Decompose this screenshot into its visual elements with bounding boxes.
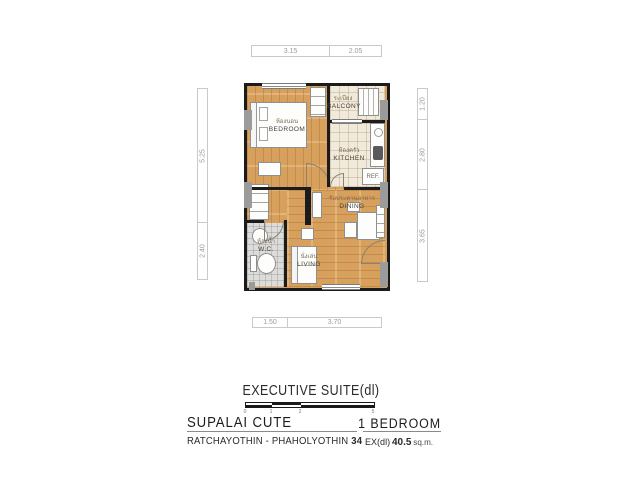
- room-label-balcony: ระเบียง BALCONY: [327, 96, 359, 110]
- dim-right-3-value: 3.65: [419, 229, 426, 243]
- floor-plan: REF.: [244, 83, 390, 291]
- dim-left-2-value: 2.40: [199, 244, 206, 258]
- room-label-kitchen: ห้องครัว KITCHEN: [331, 148, 367, 162]
- room-label-bedroom: ห้องนอน BEDROOM: [257, 119, 317, 133]
- stove-hob: [374, 128, 383, 137]
- dim-bottom-2-value: 3.70: [328, 319, 342, 326]
- column: [380, 100, 388, 120]
- dim-right-2: 2.80: [417, 119, 428, 190]
- bedroom-bench: [258, 162, 281, 176]
- area-unit: sq.m.: [413, 437, 433, 447]
- location-text: RATCHAYOTHIN - PHAHOLYOTHIN: [187, 436, 348, 447]
- wall-hall-living: [305, 187, 311, 225]
- dim-top-2-value: 2.05: [349, 48, 363, 55]
- living-label-thai: นั่งเล่น: [293, 254, 325, 261]
- kitchen-label-thai: ห้องครัว: [331, 148, 367, 155]
- kitchen-label-en: KITCHEN: [331, 155, 367, 162]
- living-label-en: LIVING: [293, 261, 325, 268]
- wall-bedroom-south: [247, 187, 306, 190]
- scale-bar-segment: [301, 405, 374, 407]
- column: [244, 182, 252, 208]
- bedroom-closet: [310, 87, 326, 117]
- kitchen-sink: [373, 146, 383, 160]
- balcony-label-thai: ระเบียง: [327, 96, 359, 103]
- refrigerator-label: REF.: [363, 174, 383, 180]
- column: [380, 262, 388, 287]
- bedroom-window: [262, 83, 306, 89]
- dim-top-2: 2.05: [329, 45, 382, 57]
- area-value: 40.5: [392, 436, 411, 448]
- dim-top-1: 3.15: [251, 45, 330, 57]
- dim-right-2-value: 2.80: [419, 148, 426, 162]
- dining-label-thai: รับประทานอาหาร: [323, 196, 381, 203]
- scale-bar-segment: [246, 405, 272, 407]
- column: [380, 182, 388, 208]
- room-label-dining: รับประทานอาหาร DINING: [323, 196, 381, 210]
- coffee-table: [301, 228, 314, 240]
- area-code: EX(dl): [365, 437, 390, 448]
- dim-right-1: 1.20: [417, 88, 428, 120]
- dim-bottom-2: 3.70: [287, 317, 382, 328]
- column: [244, 110, 252, 130]
- dim-left-2: 2.40: [197, 222, 208, 280]
- bedroom-label-thai: ห้องนอน: [257, 119, 317, 126]
- wall-kitchen-south: [344, 187, 385, 190]
- kitchen-counter: [370, 123, 385, 167]
- location-number: 34: [351, 436, 362, 447]
- dim-right-1-value: 1.20: [419, 97, 426, 111]
- wc-label-thai: ห้องน้ำ: [249, 239, 283, 246]
- balcony-label-en: BALCONY: [327, 103, 359, 110]
- scale-tick-2: 2: [299, 409, 302, 415]
- footer-rule-right: [363, 431, 441, 432]
- dim-left-1-value: 5.25: [199, 149, 206, 163]
- project-name: SUPALAI CUTE: [187, 414, 292, 431]
- dim-top-1-value: 3.15: [284, 48, 298, 55]
- unit-type-title: EXECUTIVE SUITE(dl): [207, 383, 415, 399]
- bedroom-label-en: BEDROOM: [257, 126, 317, 133]
- wall-wc-top: [247, 220, 264, 223]
- bedroom-count: 1 BEDROOM: [349, 416, 441, 431]
- project-location: RATCHAYOTHIN - PHAHOLYOTHIN34: [187, 436, 362, 447]
- scale-bar-segment: [272, 403, 301, 405]
- dining-label-en: DINING: [323, 203, 381, 210]
- toilet-bowl: [257, 253, 276, 274]
- scale-bar: [245, 402, 375, 408]
- dim-bottom-1: 1.50: [252, 317, 288, 328]
- wc-label-en: W.C.: [249, 246, 283, 253]
- wall-wc-right: [284, 220, 287, 287]
- balcony-sliding-door: [332, 119, 362, 124]
- dim-left-1: 5.25: [197, 88, 208, 223]
- tv-cabinet: [312, 192, 322, 218]
- unit-area: EX(dl)40.5sq.m.: [365, 436, 433, 448]
- living-window: [322, 284, 360, 290]
- toilet-tank: [250, 255, 257, 272]
- footer-rule-left: [187, 431, 357, 432]
- dim-right-3: 3.65: [417, 189, 428, 282]
- room-label-living: นั่งเล่น LIVING: [293, 254, 325, 268]
- scale-tick-5: 5: [372, 409, 375, 415]
- dining-chair: [344, 222, 357, 238]
- room-label-wc: ห้องน้ำ W.C.: [249, 239, 283, 253]
- column: [249, 282, 255, 290]
- washing-machine: [358, 88, 379, 116]
- floorplan-page: 3.15 2.05 5.25 2.40 1.20 2.80 3.65 1.50 …: [0, 0, 640, 480]
- dim-bottom-1-value: 1.50: [263, 319, 277, 326]
